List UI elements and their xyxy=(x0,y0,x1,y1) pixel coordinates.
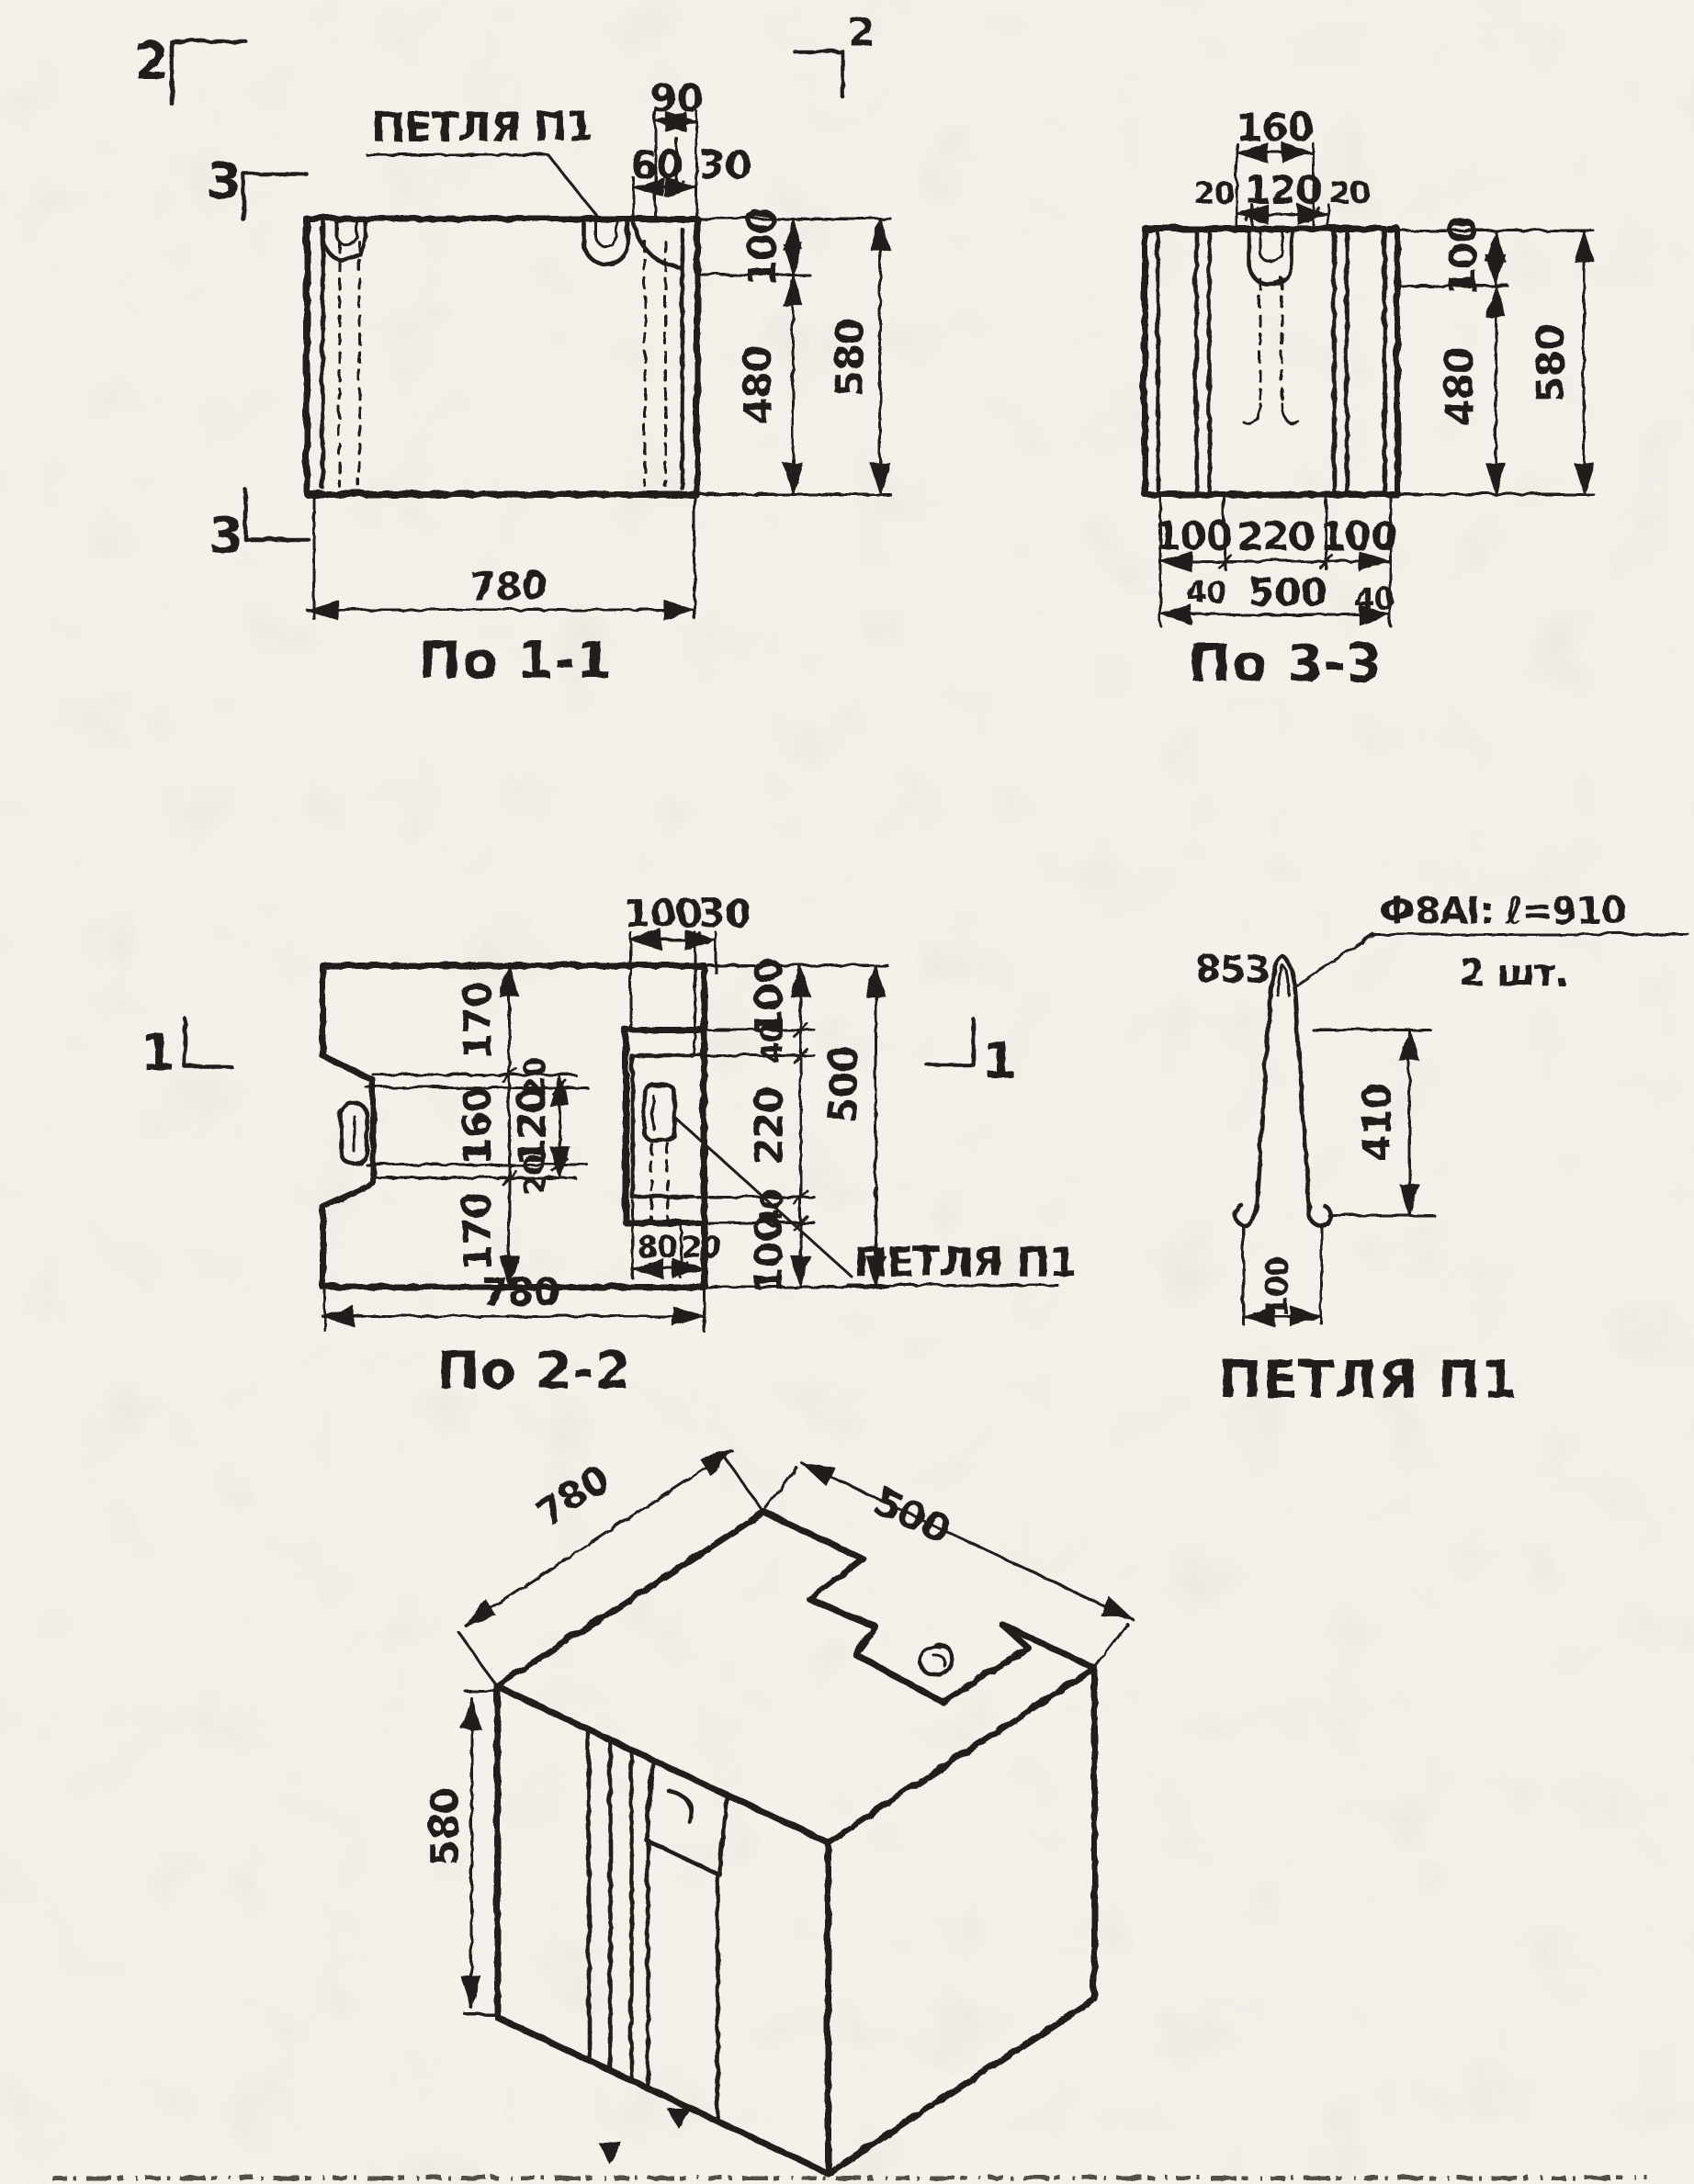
v33-dim-220: 220 xyxy=(1236,512,1314,557)
loop-title: ПЕТЛЯ П1 xyxy=(1217,1349,1517,1409)
v33-dim-580: 580 xyxy=(1527,324,1572,402)
section-2-right-label: 2 xyxy=(847,8,873,53)
v22-dim-80: 80 xyxy=(636,1228,676,1264)
section-2-left-label: 2 xyxy=(133,31,167,89)
v22-dim-120: 120 xyxy=(508,1086,553,1165)
section-1-right-label: 1 xyxy=(981,1030,1015,1088)
v22-dim-20b: 20 xyxy=(515,1154,551,1194)
v33-dim-100l: 100 xyxy=(1153,512,1231,557)
blueprint-canvas: ПЕТЛЯ П1 90 60 30 100 480 580 xyxy=(0,0,1694,2184)
v33-dim-500: 500 xyxy=(1248,569,1326,614)
iso-dim-580: 580 xyxy=(421,1787,466,1865)
v33-dim-120: 120 xyxy=(1243,166,1321,211)
section-1-left-label: 1 xyxy=(140,1023,174,1081)
v33-dim-480: 480 xyxy=(1436,347,1481,425)
loop-dim-410: 410 xyxy=(1353,1083,1398,1161)
v33-bottom-dims: 100 220 100 40 40 500 xyxy=(1153,496,1396,625)
v22-dim-160: 160 xyxy=(454,1086,499,1165)
v22-dim-100b: 100 xyxy=(745,1215,790,1293)
v22-dim-500: 500 xyxy=(820,1045,865,1123)
v22-dim-170a: 170 xyxy=(454,981,499,1059)
v22-dim-780: 780 xyxy=(480,1268,559,1313)
v33-dim-20r: 20 xyxy=(1328,174,1369,209)
v33-dim-20l: 20 xyxy=(1192,174,1233,209)
v22-dim-40a: 40 xyxy=(752,1021,788,1062)
section-3-top-label: 3 xyxy=(206,151,240,208)
loop-bend-note: 853 xyxy=(1194,948,1269,990)
v11-dim-60: 60 xyxy=(629,141,681,186)
v33-dim-100r: 100 xyxy=(1318,512,1396,557)
v11-dim-30: 30 xyxy=(698,141,750,186)
v33-title: По 3-3 xyxy=(1187,633,1382,692)
scanned-drawing-page: ПЕТЛЯ П1 90 60 30 100 480 580 xyxy=(0,0,1694,2184)
v22-title: По 2-2 xyxy=(435,1340,630,1400)
v11-dim-90: 90 xyxy=(649,74,701,119)
v33-dim-100: 100 xyxy=(1440,217,1485,295)
v22-dim-100top: 100 xyxy=(623,890,701,935)
v33-dim-40r: 40 xyxy=(1352,580,1393,615)
v11-dim-780: 780 xyxy=(469,563,547,608)
v22-dim-30top: 30 xyxy=(698,890,750,935)
section-3-bottom-label: 3 xyxy=(208,505,242,563)
v22-callout-label: ПЕТЛЯ П1 xyxy=(853,1238,1075,1285)
v33-dim-40l: 40 xyxy=(1185,573,1225,609)
loop-dim-100: 100 xyxy=(1258,1255,1293,1316)
v22-dim-20c: 20 xyxy=(680,1228,720,1264)
loop-spec-line1: Ф8АI: ℓ=910 xyxy=(1378,889,1624,931)
v11-dim-100: 100 xyxy=(739,208,784,286)
v22-dim-170b: 170 xyxy=(454,1192,499,1270)
v11-dim-480: 480 xyxy=(734,345,779,423)
v33-dim-160: 160 xyxy=(1235,104,1313,149)
v11-callout-label: ПЕТЛЯ П1 xyxy=(370,103,593,150)
loop-spec-line2: 2 шт. xyxy=(1459,951,1567,994)
v11-title: По 1-1 xyxy=(417,630,612,690)
v22-dim-220: 220 xyxy=(745,1086,790,1165)
v11-dim-580: 580 xyxy=(826,318,871,396)
